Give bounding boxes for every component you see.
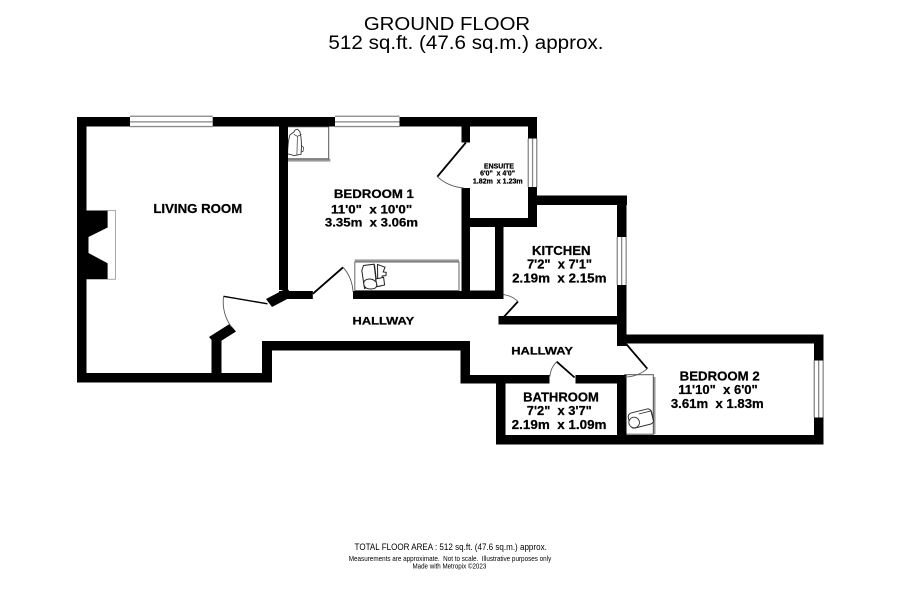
- svg-text:HALLWAY: HALLWAY: [353, 315, 415, 327]
- svg-text:Made with Metropix ©2023: Made with Metropix ©2023: [413, 562, 487, 571]
- svg-text:BATHROOM: BATHROOM: [523, 390, 599, 404]
- svg-text:512 sq.ft. (47.6 sq.m.) approx: 512 sq.ft. (47.6 sq.m.) approx.: [328, 32, 603, 54]
- svg-text:11'10" x 6'0": 11'10" x 6'0": [678, 382, 758, 397]
- svg-text:7'2" x 7'1": 7'2" x 7'1": [527, 257, 592, 272]
- svg-text:3.61m x 1.83m: 3.61m x 1.83m: [671, 396, 764, 411]
- svg-text:7'2" x 3'7": 7'2" x 3'7": [527, 404, 592, 418]
- svg-text:TOTAL FLOOR AREA : 512 sq.ft.: TOTAL FLOOR AREA : 512 sq.ft. (47.6 sq.m…: [355, 542, 547, 552]
- svg-text:11'0" x 10'0": 11'0" x 10'0": [331, 202, 412, 216]
- svg-text:LIVING ROOM: LIVING ROOM: [153, 202, 242, 216]
- svg-text:3.35m x 3.06m: 3.35m x 3.06m: [325, 216, 418, 230]
- svg-text:HALLWAY: HALLWAY: [511, 346, 574, 358]
- svg-text:1.82m x 1.23m: 1.82m x 1.23m: [473, 177, 523, 186]
- svg-text:2.19m x 2.15m: 2.19m x 2.15m: [512, 271, 606, 286]
- svg-text:BEDROOM 1: BEDROOM 1: [334, 187, 414, 201]
- svg-text:2.19m x 1.09m: 2.19m x 1.09m: [512, 418, 607, 432]
